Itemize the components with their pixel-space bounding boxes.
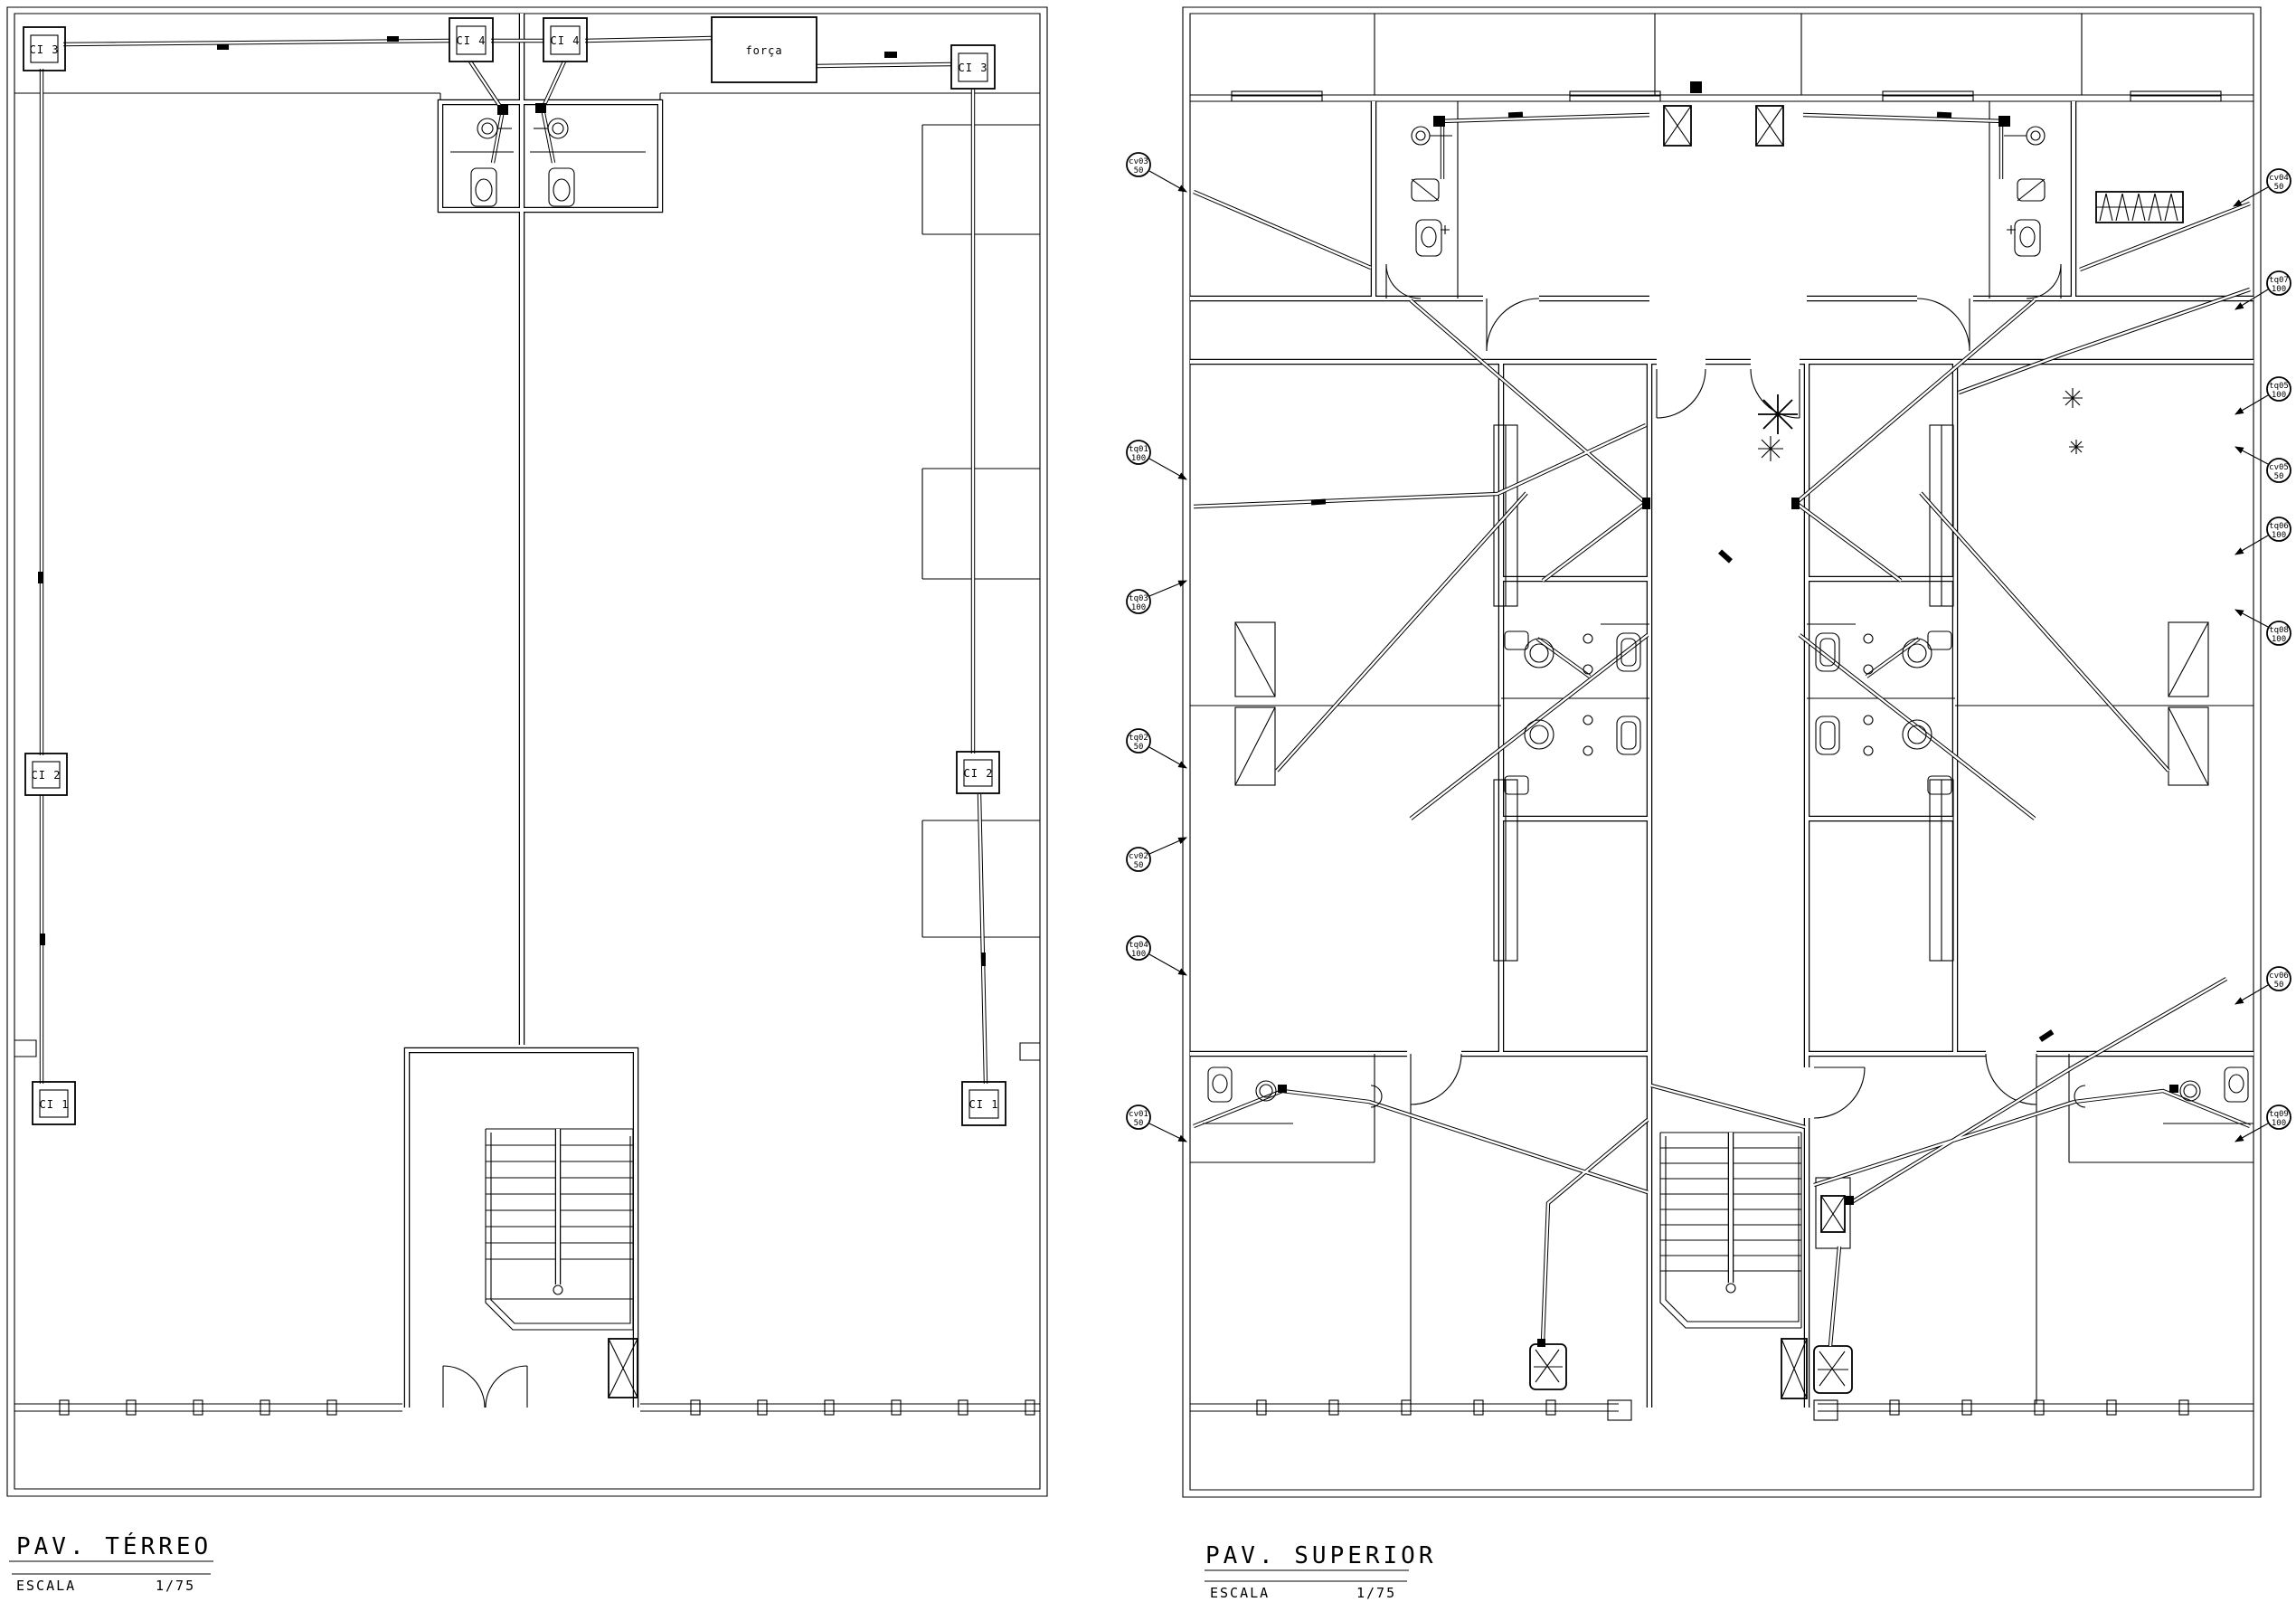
box-ci3-top-right: CI 3	[951, 45, 995, 89]
terreo-entrance-doors	[443, 1366, 527, 1408]
junction-box	[535, 103, 546, 113]
svg-text:100: 100	[2272, 391, 2286, 400]
pipe-callout: tq02 50	[1127, 729, 1186, 768]
box-ci4-left: CI 4	[449, 18, 493, 62]
box-label: CI 3	[30, 43, 60, 56]
plan-title: PAV. TÉRREO	[16, 1531, 212, 1560]
conduit-tag	[1718, 549, 1733, 563]
conduit-tag	[1937, 112, 1951, 118]
box-label: CI 2	[32, 769, 61, 782]
junction-box	[1690, 81, 1702, 93]
pipe-callout: cv05 50	[2235, 447, 2291, 482]
superior-distribution-box	[1816, 1178, 1850, 1248]
pipe-callout: cv02 50	[1127, 838, 1186, 871]
scale-label: ESCALA	[1210, 1585, 1270, 1601]
superior-shafts	[1664, 81, 1807, 1398]
superior-stairs	[1660, 1133, 1801, 1328]
conduit-tag	[1508, 112, 1523, 118]
scale-value: 1/75	[1356, 1585, 1396, 1601]
svg-text:cv03: cv03	[1129, 157, 1148, 166]
svg-text:50: 50	[2274, 472, 2284, 481]
scale-value: 1/75	[156, 1578, 195, 1594]
svg-text:tq03: tq03	[1129, 594, 1148, 603]
pipe-callout: cv06 50	[2235, 967, 2291, 1004]
terreo-inner-walls	[407, 14, 660, 1408]
box-ci1-right: CI 1	[962, 1082, 1006, 1125]
svg-text:tq02: tq02	[1129, 734, 1148, 743]
svg-text:100: 100	[2272, 531, 2286, 540]
svg-text:50: 50	[1134, 166, 1144, 175]
pipe-callout: cv03 50	[1127, 153, 1186, 192]
svg-text:tq01: tq01	[1129, 445, 1148, 454]
box-ci2-right: CI 2	[957, 752, 999, 793]
junction-box	[1791, 498, 1800, 509]
svg-text:cv04: cv04	[2269, 174, 2289, 183]
svg-text:100: 100	[2272, 635, 2286, 644]
superior-outer-walls	[1183, 7, 2261, 1497]
conduit-tag	[387, 36, 399, 42]
plan-superior: cv03 50 tq01 100 tq03 100 tq02 50 cv02	[1127, 7, 2291, 1601]
callouts-right: cv04 50 tq07 100 tq05 100 cv05 50 tq06	[2234, 169, 2291, 1142]
box-label: CI 2	[964, 767, 994, 780]
superior-title-block: PAV. SUPERIOR ESCALA 1/75	[1205, 1542, 1437, 1601]
junction-box	[1998, 116, 2010, 127]
pipe-callout: cv01 50	[1127, 1105, 1186, 1142]
junction-box	[1433, 116, 1445, 127]
conduit-tag	[981, 953, 986, 966]
terreo-stairs	[486, 1129, 633, 1330]
pipe-callout: cv04 50	[2234, 169, 2291, 206]
superior-window-mullions	[1257, 1400, 2188, 1415]
box-ci3-top-left: CI 3	[24, 27, 65, 71]
svg-text:100: 100	[1131, 603, 1146, 612]
superior-heater-fixtures	[1530, 1344, 1852, 1393]
box-label: força	[745, 44, 782, 57]
box-ci2-left: CI 2	[25, 754, 67, 795]
conduit-tag	[38, 572, 43, 583]
svg-text:100: 100	[2272, 1119, 2286, 1128]
drawing-sheet: CI 3 CI 4 CI 4 força CI 3 CI 2 CI 1 CI	[0, 0, 2296, 1602]
junction-box	[1642, 498, 1650, 509]
svg-text:100: 100	[1131, 950, 1146, 959]
pipe-callout: tq05 100	[2235, 377, 2291, 414]
junction-box	[497, 105, 508, 115]
conduit-tag	[1311, 498, 1326, 505]
box-label: CI 4	[551, 34, 581, 47]
pipe-callout: tq01 100	[1127, 441, 1186, 479]
conduit-tag	[217, 44, 229, 50]
floor-plan-drawing: CI 3 CI 4 CI 4 força CI 3 CI 2 CI 1 CI	[0, 0, 2296, 1602]
box-label: CI 4	[457, 34, 487, 47]
handrail-end	[1726, 1284, 1735, 1293]
box-label: CI 1	[40, 1098, 70, 1111]
svg-text:100: 100	[2272, 285, 2286, 294]
svg-text:cv02: cv02	[1129, 852, 1148, 861]
svg-text:50: 50	[1134, 1119, 1144, 1128]
conduit-tag	[2039, 1029, 2055, 1042]
svg-text:tq04: tq04	[1129, 941, 1148, 950]
svg-text:50: 50	[2274, 981, 2284, 990]
svg-text:50: 50	[1134, 861, 1144, 870]
terreo-conduits	[38, 36, 986, 1084]
pipe-callout: tq03 100	[1127, 581, 1186, 613]
plan-title: PAV. SUPERIOR	[1205, 1542, 1437, 1569]
louver-grille	[2096, 192, 2183, 223]
superior-wardrobes	[1235, 425, 2208, 961]
svg-text:tq09: tq09	[2269, 1110, 2289, 1119]
junction-box	[1537, 1339, 1545, 1347]
terreo-outer-walls	[7, 7, 1047, 1496]
conduit-tag	[40, 934, 45, 945]
svg-text:tq06: tq06	[2269, 522, 2289, 531]
svg-text:tq08: tq08	[2269, 626, 2289, 635]
plan-terreo: CI 3 CI 4 CI 4 força CI 3 CI 2 CI 1 CI	[7, 7, 1047, 1594]
box-ci4-right: CI 4	[543, 18, 587, 62]
box-label: CI 3	[959, 62, 988, 74]
svg-text:50: 50	[2274, 183, 2284, 192]
superior-inner-walls	[1190, 101, 2253, 1408]
svg-text:tq07: tq07	[2269, 276, 2289, 285]
terreo-title-block: PAV. TÉRREO ESCALA 1/75	[9, 1531, 213, 1594]
svg-text:tq05: tq05	[2269, 382, 2289, 391]
terreo-bathrooms	[450, 103, 646, 206]
scale-label: ESCALA	[16, 1578, 76, 1594]
junction-box	[1845, 1196, 1854, 1205]
pipe-callout: tq08 100	[2235, 610, 2291, 645]
svg-text:cv05: cv05	[2269, 463, 2289, 472]
pipe-callout: tq04 100	[1127, 936, 1186, 975]
callouts-left: cv03 50 tq01 100 tq03 100 tq02 50 cv02	[1127, 153, 1186, 1142]
svg-text:50: 50	[1134, 743, 1144, 752]
svg-text:100: 100	[1131, 454, 1146, 463]
svg-text:cv01: cv01	[1129, 1110, 1148, 1119]
handrail-end	[553, 1285, 562, 1294]
box-label: CI 1	[969, 1098, 999, 1111]
terreo-window-mullions	[60, 1400, 1035, 1415]
pipe-callout: tq06 100	[2235, 517, 2291, 555]
box-forca: força	[712, 17, 817, 82]
svg-text:cv06: cv06	[2269, 972, 2289, 981]
box-ci1-left: CI 1	[33, 1082, 75, 1124]
conduit-tag	[884, 52, 897, 58]
